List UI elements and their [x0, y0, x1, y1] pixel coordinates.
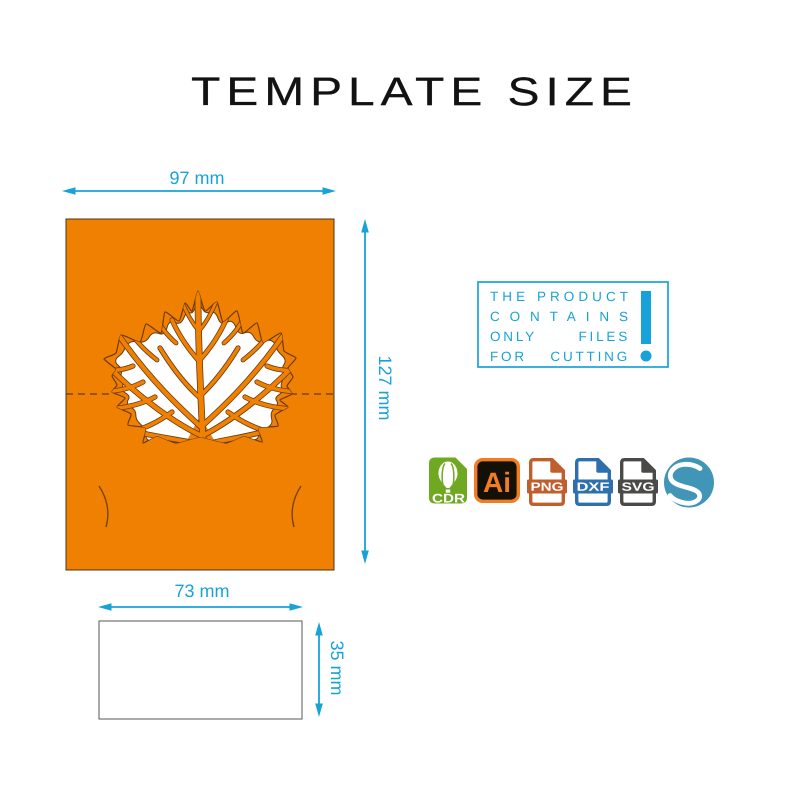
- svg-text:CUTTING: CUTTING: [550, 349, 630, 364]
- svg-text:PNG: PNG: [530, 480, 563, 494]
- svg-text:ONLY: ONLY: [490, 329, 537, 344]
- svg-text:97 mm: 97 mm: [169, 168, 224, 188]
- svg-text:73 mm: 73 mm: [174, 581, 229, 601]
- svg-text:127 mm: 127 mm: [375, 355, 395, 420]
- svg-text:Ai: Ai: [483, 467, 511, 498]
- svg-text:TEMPLATE SIZE: TEMPLATE SIZE: [191, 70, 638, 114]
- svg-text:DXF: DXF: [576, 480, 609, 494]
- svg-text:THE PRODUCT: THE PRODUCT: [490, 289, 630, 304]
- svg-text:CDR: CDR: [432, 491, 465, 505]
- svg-text:CONTAINS: CONTAINS: [490, 309, 630, 324]
- svg-text:35 mm: 35 mm: [327, 640, 347, 695]
- svg-text:FOR: FOR: [490, 349, 527, 364]
- svg-text:FILES: FILES: [578, 329, 630, 344]
- svg-text:SVG: SVG: [621, 480, 654, 494]
